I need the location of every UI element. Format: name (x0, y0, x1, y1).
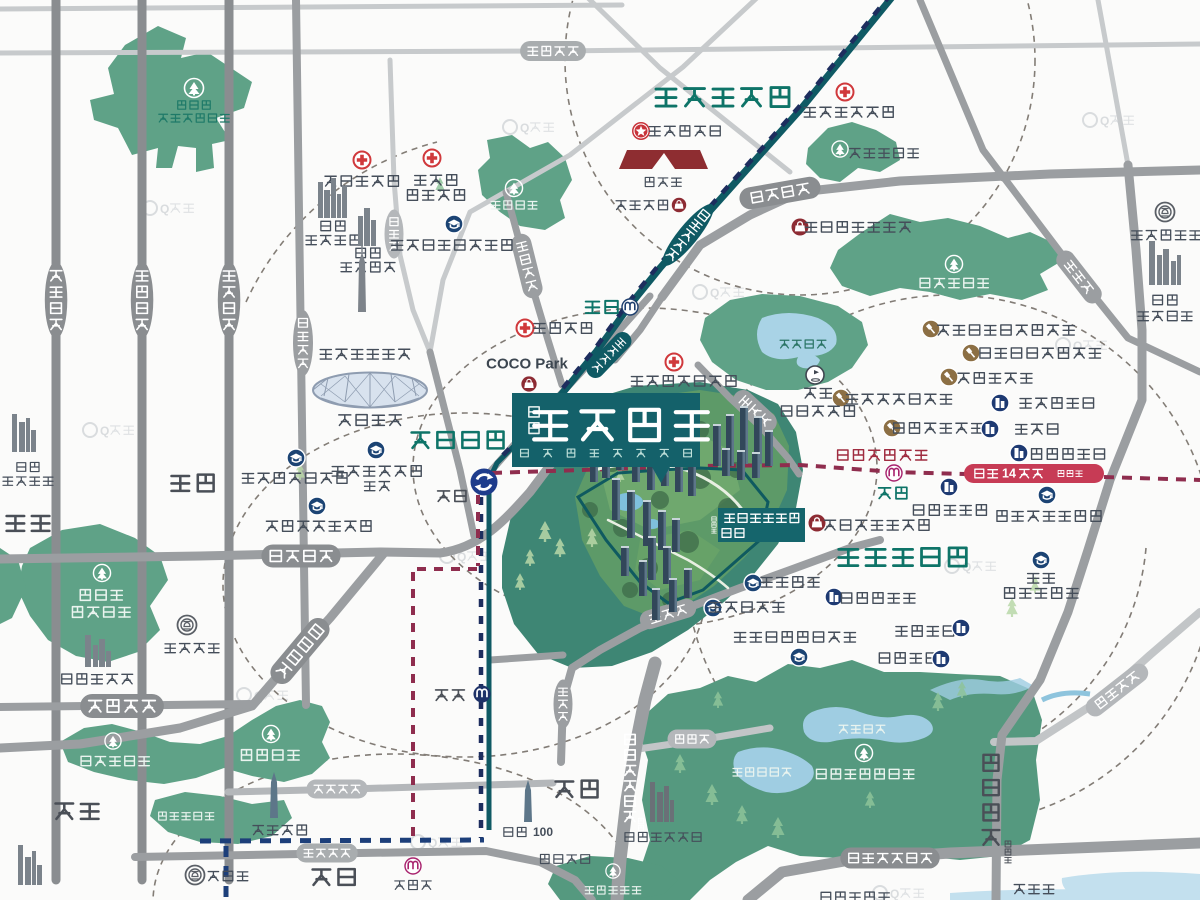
svg-text:14: 14 (1002, 467, 1016, 481)
svg-text:COCO Park: COCO Park (486, 356, 568, 373)
svg-text:100: 100 (533, 825, 553, 839)
